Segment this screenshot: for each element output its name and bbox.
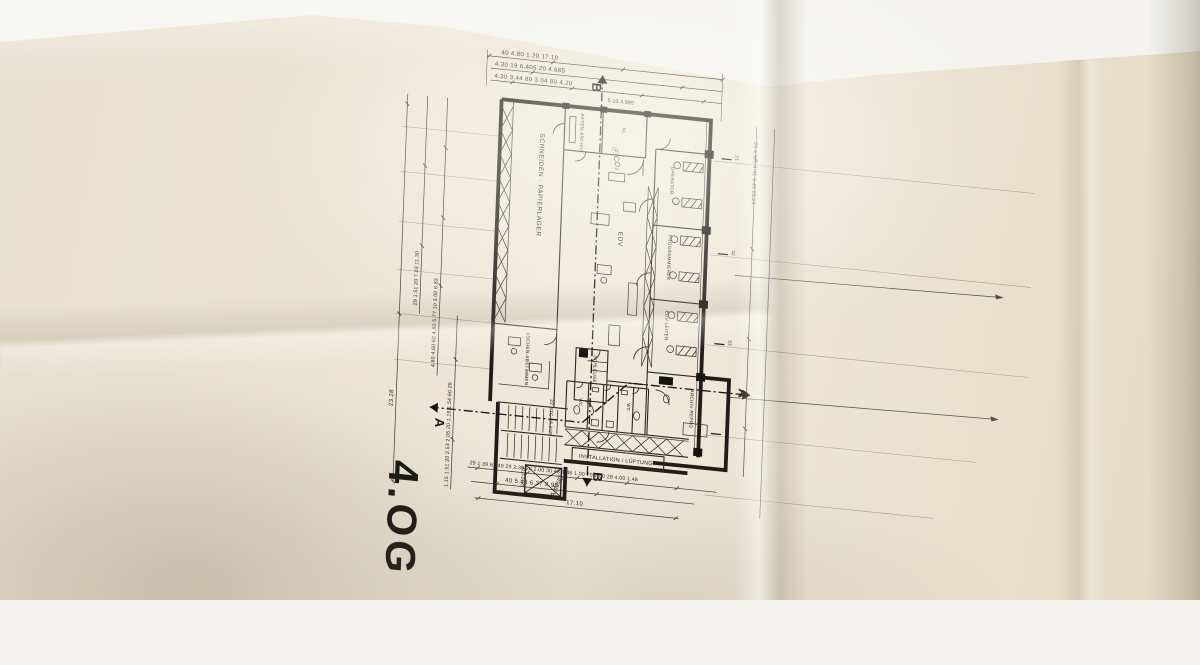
room-label-programmierer: PROGRAMMIERER [666, 235, 673, 281]
door-arcs [541, 123, 680, 450]
section-marker-b-top: B [589, 82, 604, 93]
room-label-schleuse: SCHLEUSE [592, 355, 598, 383]
handwritten-co2-note: Ⓕ CO₂ [610, 146, 623, 171]
room-label-operator: OPERATOR [669, 167, 675, 196]
grid-label: 34 [724, 430, 729, 436]
floor-plan-drawing: 40 4.80 1.20 17.10 4.30 19 6.405 20 4.68… [371, 10, 1091, 660]
grid-label: 31 [734, 155, 739, 161]
dim-top-row4: 5.10 4.985 [608, 98, 635, 107]
photo-of-floor-plan: 40 4.80 1.20 17.10 4.30 19 6.405 20 4.68… [0, 0, 1200, 600]
room-label-lochen: LOCHEN-ABSTIMMEN [524, 332, 531, 385]
room-label-wc-right: WC [626, 403, 631, 412]
dim-left-inner: 4.60 4.60 62 4.60 5.77 10 3.00 6.83 [430, 278, 439, 368]
grid-label: 32 [731, 250, 736, 256]
section-marker-b-bottom: B [590, 471, 605, 482]
stair-note: 22 STG 16,2/26 [548, 399, 554, 436]
section-marker-a-left: A [432, 417, 447, 429]
dim-left-outer: 23.28 [389, 389, 396, 407]
grid-ticks: 31 32 33 34 [711, 154, 740, 436]
window-lattice-mid [642, 186, 659, 367]
edv-machines [578, 170, 641, 375]
room-label-schneiden: SCHNEIDEN · PAPIERLAGER [534, 133, 545, 237]
dimension-chain-left [391, 94, 468, 490]
room-label-edv-leiter: EDV-LEITER [664, 310, 670, 341]
dim-bottom-row3: 17.10 [566, 500, 583, 508]
floor-title: 4.OG [376, 458, 427, 579]
dim-left-mid: 29 1.51 20 7.03 11.30 [413, 251, 421, 306]
leader-arrows [730, 268, 1002, 424]
room-label-archiv-repro: ARCHIV·REPRO [688, 389, 694, 428]
dim-right-chain: 28 4.985 4.41 4.43 23.28 [750, 142, 758, 205]
room-label-wc-left: WC [578, 398, 583, 407]
grid-label: 33 [727, 340, 732, 346]
room-label-aufzug: AUFZUG [520, 466, 526, 487]
dim-left-lower: 1.15 1.51 20 2.53 2.05 20 1.15 1.54 60 2… [444, 382, 454, 487]
akten-shelf [569, 116, 576, 143]
room-label-akten-archiv: AKTEN-ARCHIV [579, 113, 585, 152]
room-label-kl: KL. [621, 128, 626, 136]
room-label-edv: EDV [616, 231, 624, 247]
dim-top-row2: 4.30 19 6.405 20 4.685 [495, 62, 566, 75]
dim-top-row3: 4.30 3.44 80 3.04 80 4.20 [494, 73, 573, 87]
